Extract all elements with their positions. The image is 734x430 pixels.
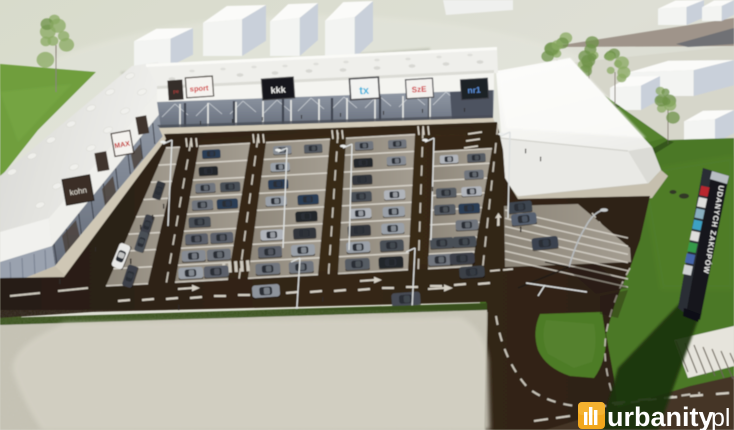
svg-text:kkk: kkk <box>270 84 287 95</box>
svg-text:pe: pe <box>173 89 179 95</box>
svg-text:SzE: SzE <box>411 85 427 95</box>
svg-text:sport: sport <box>189 83 209 93</box>
svg-text:nr1: nr1 <box>467 85 481 96</box>
svg-text:urbanity: urbanity <box>607 402 714 430</box>
svg-text:pl: pl <box>711 404 730 430</box>
svg-text:tx: tx <box>359 85 370 98</box>
